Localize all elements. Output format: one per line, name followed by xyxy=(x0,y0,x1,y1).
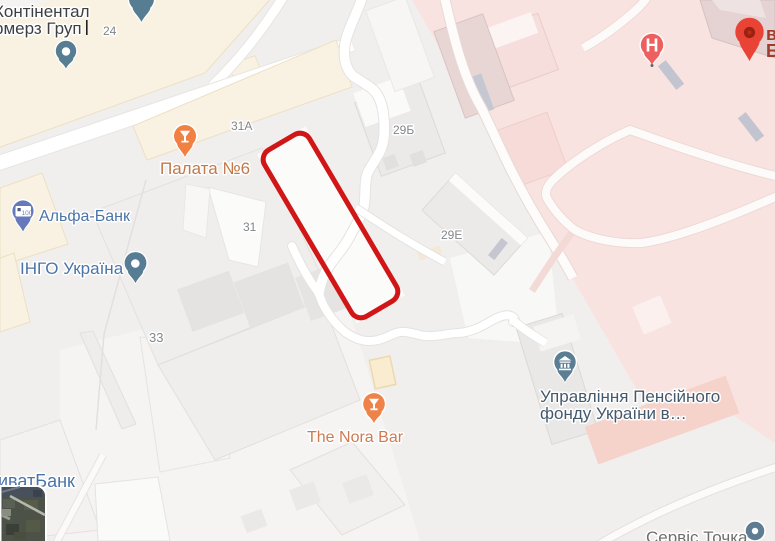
svg-text:рмерз Груп: рмерз Груп xyxy=(0,19,82,38)
svg-text:Сервіс Точка: Сервіс Точка xyxy=(646,528,748,541)
svg-text:The Nora Bar: The Nora Bar xyxy=(307,429,404,446)
svg-text:100: 100 xyxy=(22,210,33,217)
svg-text:Альфа-Банк: Альфа-Банк xyxy=(39,208,131,225)
svg-text:24: 24 xyxy=(103,24,117,38)
svg-text:31: 31 xyxy=(243,220,257,234)
svg-text:33: 33 xyxy=(149,330,163,345)
svg-text:29Е: 29Е xyxy=(441,228,462,242)
svg-text:фонду України в…: фонду України в… xyxy=(540,404,687,423)
svg-text:Б: Б xyxy=(766,41,775,61)
svg-text:ІНГО Україна: ІНГО Україна xyxy=(20,259,124,278)
svg-text:H: H xyxy=(646,36,659,56)
svg-text:31А: 31А xyxy=(231,119,252,133)
svg-text:Палата №6: Палата №6 xyxy=(160,159,250,178)
svg-text:29Б: 29Б xyxy=(393,123,414,137)
